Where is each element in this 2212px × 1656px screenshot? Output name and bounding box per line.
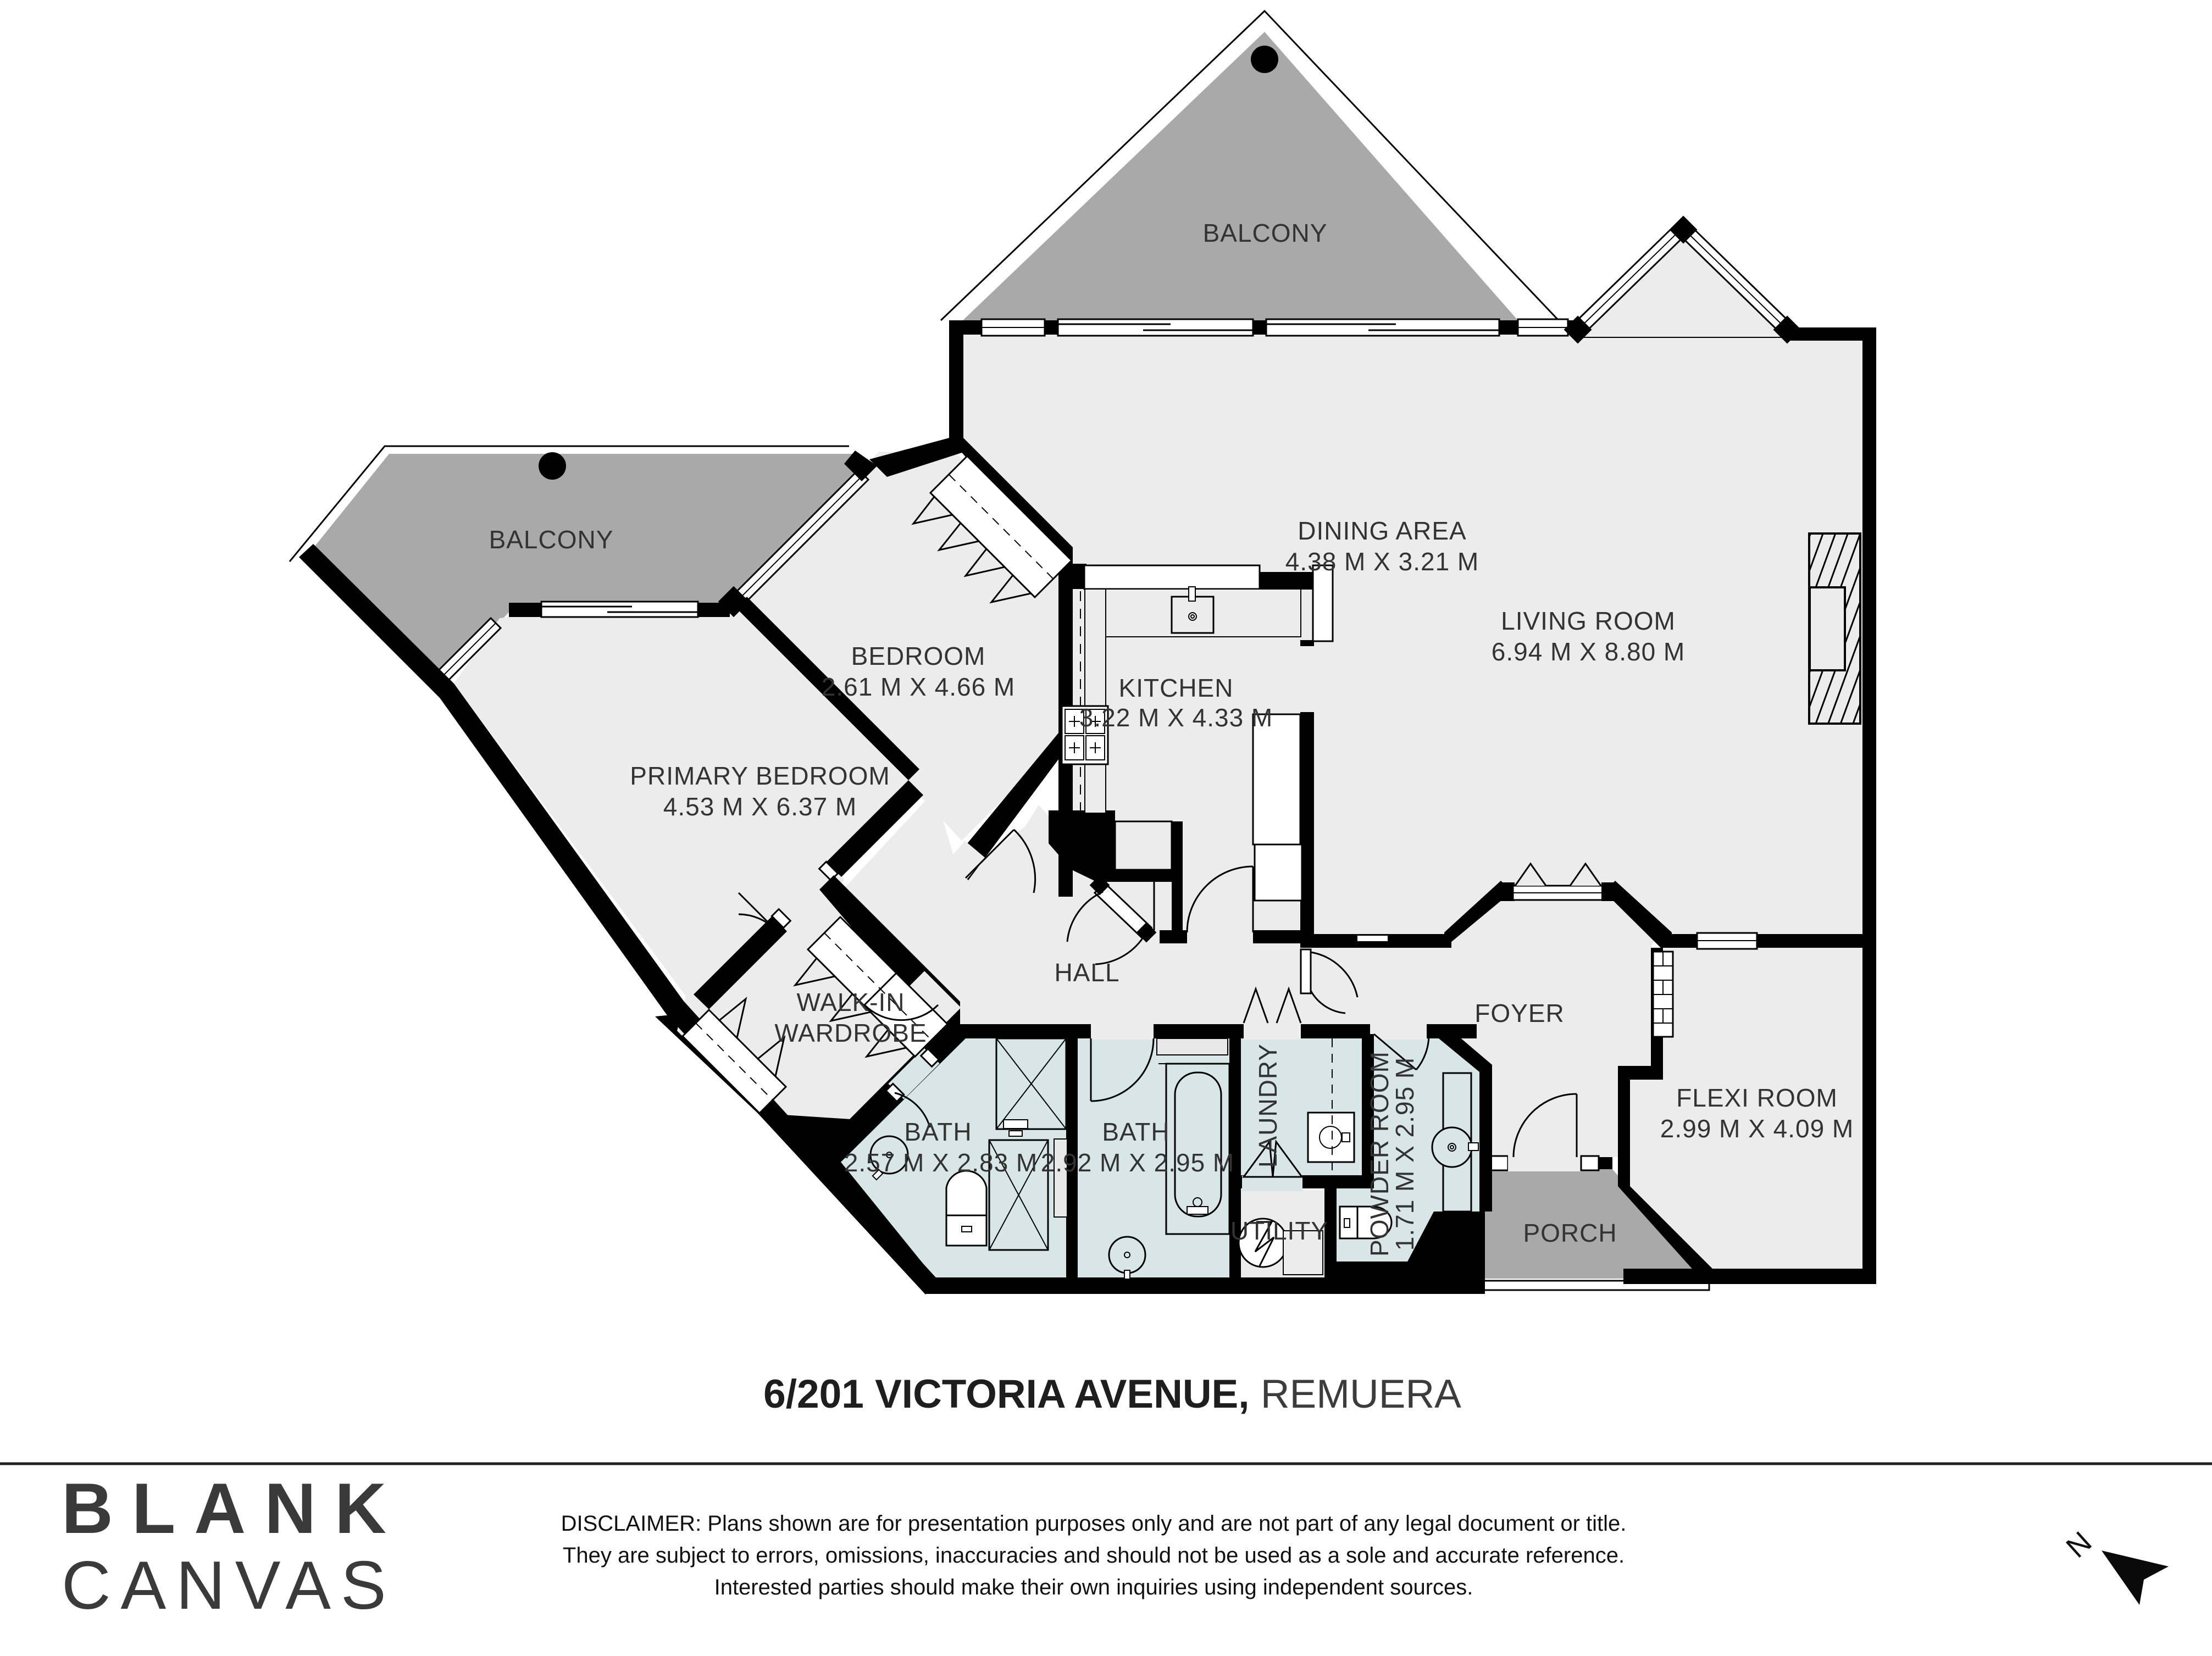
svg-text:2.57 M X 2.83 M: 2.57 M X 2.83 M [844,1148,1038,1177]
svg-text:WARDROBE: WARDROBE [774,1019,927,1047]
svg-text:BATH: BATH [1102,1118,1169,1146]
svg-text:DISCLAIMER: Plans shown are fo: DISCLAIMER: Plans shown are for presenta… [561,1511,1627,1536]
svg-text:4.38 M X 3.21 M: 4.38 M X 3.21 M [1285,547,1479,576]
svg-text:BATH: BATH [904,1118,972,1146]
svg-text:HALL: HALL [1054,958,1119,987]
svg-text:3.22 M X 4.33 M: 3.22 M X 4.33 M [1079,703,1273,732]
svg-text:POWDER ROOM: POWDER ROOM [1365,1051,1394,1257]
svg-text:1.71 M X 2.95 M: 1.71 M X 2.95 M [1390,1057,1419,1251]
svg-text:BEDROOM: BEDROOM [851,642,986,670]
svg-text:FOYER: FOYER [1474,999,1564,1027]
svg-text:Interested parties should make: Interested parties should make their own… [714,1575,1473,1599]
svg-text:2.99 M X 4.09 M: 2.99 M X 4.09 M [1660,1114,1854,1143]
svg-text:CANVAS: CANVAS [62,1548,396,1624]
svg-text:PORCH: PORCH [1523,1219,1617,1247]
svg-text:PRIMARY BEDROOM: PRIMARY BEDROOM [630,762,890,790]
svg-text:They are subject to errors, om: They are subject to errors, omissions, i… [563,1543,1625,1568]
svg-text:LAUNDRY: LAUNDRY [1254,1043,1282,1168]
svg-text:2.61 M X 4.66 M: 2.61 M X 4.66 M [822,673,1016,701]
svg-text:UTILITY: UTILITY [1230,1216,1328,1245]
svg-text:DINING AREA: DINING AREA [1298,516,1467,545]
svg-text:BALCONY: BALCONY [489,525,614,554]
svg-text:WALK-IN: WALK-IN [797,988,905,1016]
svg-text:6/201 VICTORIA AVENUE, REMUERA: 6/201 VICTORIA AVENUE, REMUERA [763,1372,1461,1416]
svg-text:6.94 M X 8.80 M: 6.94 M X 8.80 M [1492,637,1686,666]
svg-text:FLEXI ROOM: FLEXI ROOM [1676,1083,1838,1112]
svg-text:BLANK: BLANK [62,1468,405,1548]
svg-text:KITCHEN: KITCHEN [1119,674,1234,702]
svg-text:4.53 M X 6.37 M: 4.53 M X 6.37 M [663,792,857,821]
svg-text:BALCONY: BALCONY [1203,219,1328,247]
svg-text:2.92 M X 2.95 M: 2.92 M X 2.95 M [1041,1148,1235,1177]
svg-text:LIVING ROOM: LIVING ROOM [1501,607,1676,635]
